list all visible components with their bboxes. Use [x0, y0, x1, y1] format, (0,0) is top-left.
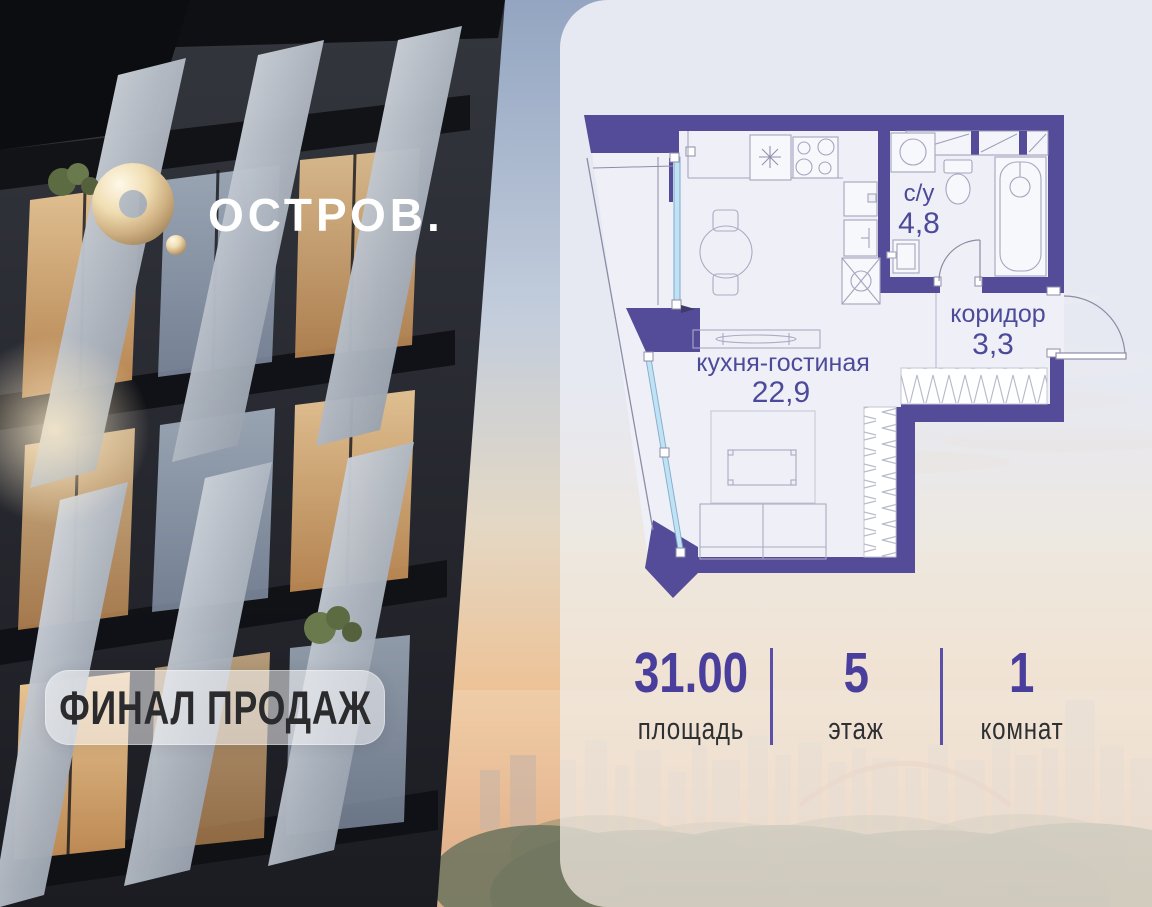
building-facade	[0, 0, 505, 907]
stat-area-label: площадь	[638, 711, 744, 747]
badge-label: ФИНАЛ ПРОДАЖ	[59, 680, 371, 735]
stat-floor-value: 5	[843, 645, 868, 701]
apartment-listing-card[interactable]: кухня-гостиная 22,9 с/у 4,8 коридор 3,3 …	[560, 0, 1152, 907]
sink-asterisk-icon	[759, 146, 781, 168]
stat-floor-label: этаж	[828, 711, 883, 747]
floor-plan: кухня-гостиная 22,9 с/у 4,8 коридор 3,3	[573, 100, 1152, 605]
stat-floor: 5 этаж	[821, 645, 892, 747]
room-label-kitchen-living: кухня-гостиная	[696, 349, 870, 377]
room-area-bathroom: 4,8	[898, 207, 940, 240]
stats-divider	[770, 648, 773, 745]
room-label-corridor: коридор	[950, 300, 1045, 328]
bathtub-icon	[995, 157, 1046, 276]
room-area-kitchen-living: 22,9	[752, 376, 810, 409]
stat-rooms: 1 комнат	[969, 645, 1075, 747]
sales-status-badge: ФИНАЛ ПРОДАЖ	[45, 670, 385, 745]
apartment-stats: 31.00 площадь 5 этаж 1 комнат	[560, 645, 1152, 775]
toilet-icon	[944, 160, 972, 204]
stat-rooms-label: комнат	[981, 711, 1064, 747]
room-label-bathroom: с/у	[904, 180, 935, 207]
stat-area: 31.00 площадь	[620, 645, 763, 747]
brand-logo: ОСТРОВ.	[88, 160, 444, 256]
room-area-corridor: 3,3	[972, 328, 1014, 361]
stat-rooms-value: 1	[1009, 645, 1034, 701]
stat-area-value: 31.00	[634, 645, 748, 701]
kitchen-base-icon	[844, 220, 877, 256]
logo-wordmark: ОСТРОВ.	[208, 188, 444, 242]
logo-ring-icon	[88, 160, 190, 256]
stats-divider	[940, 648, 943, 745]
